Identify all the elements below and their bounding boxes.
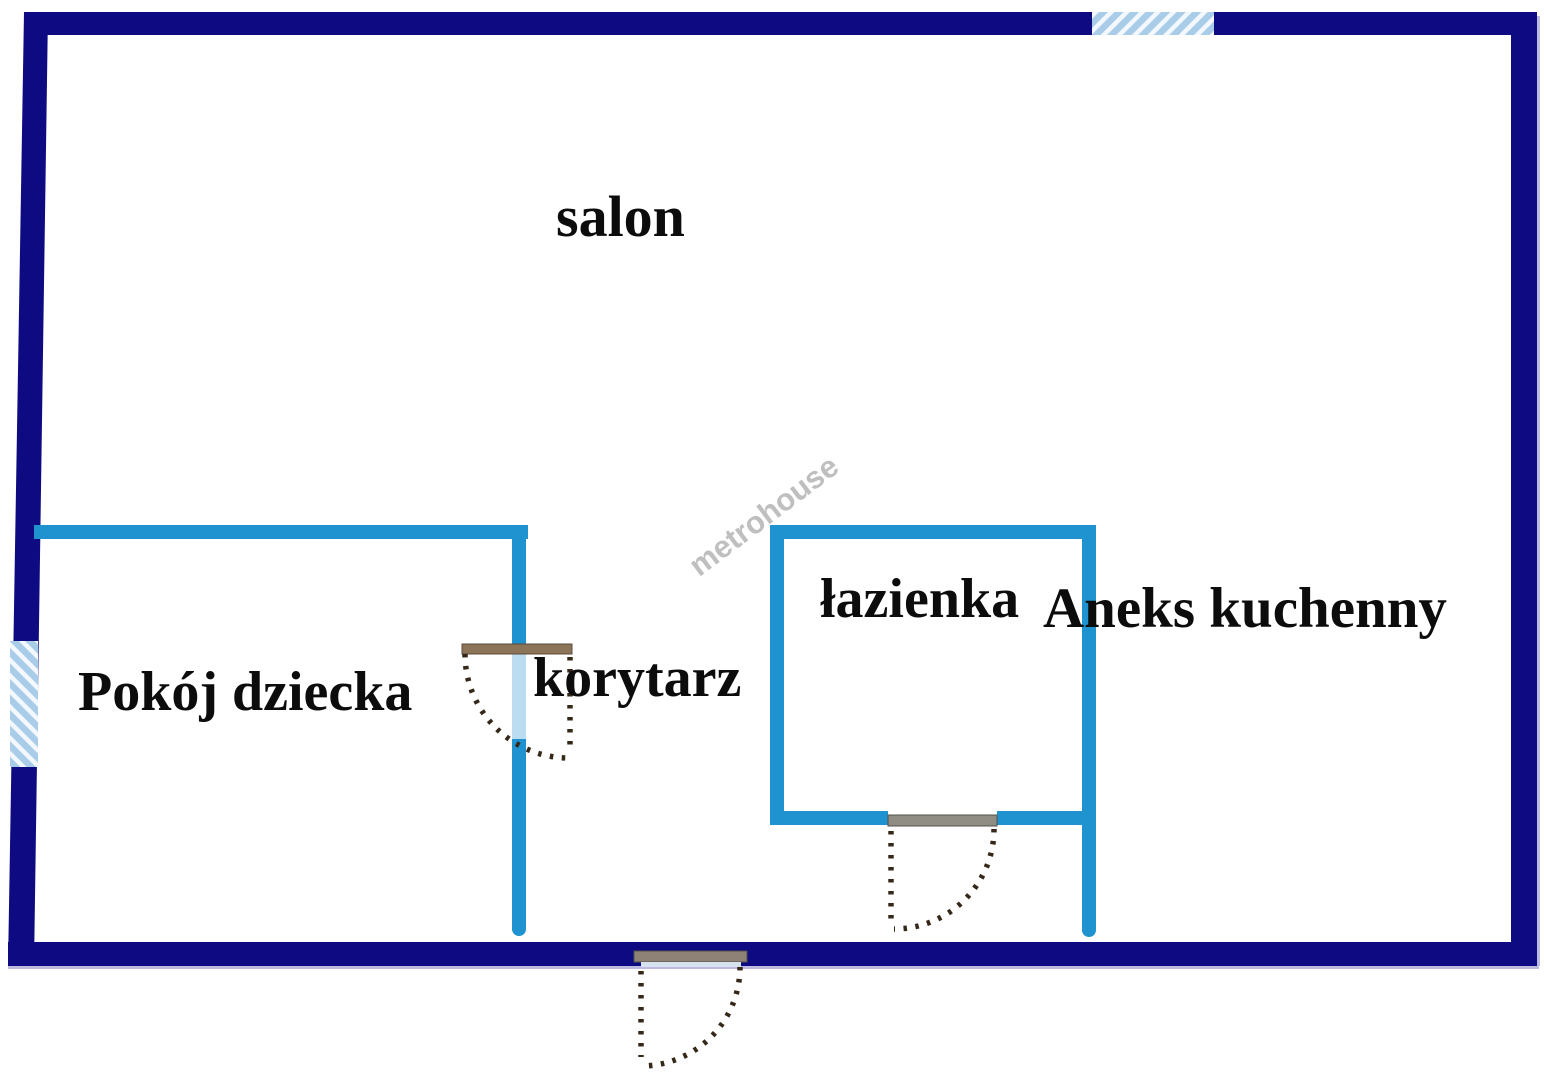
outer-wall-bottom [8, 942, 1537, 966]
outer-wall-top [24, 12, 1537, 35]
entrance-door-opening [641, 962, 741, 967]
wall-lazienka-top [770, 525, 1096, 539]
room-label-korytarz: korytarz [533, 647, 741, 709]
floor-plan: metrohouse [0, 0, 1544, 1080]
entrance-door-lintel [634, 951, 747, 962]
room-label-salon: salon [556, 184, 685, 249]
wall-pokoj-top [34, 525, 528, 539]
floor-plan-canvas: metrohouse [0, 0, 1544, 1080]
outer-wall-bottom-shadow [8, 966, 1539, 969]
room-label-pokoj-dziecka: Pokój dziecka [78, 661, 412, 723]
lazienka-door-lintel [888, 815, 997, 826]
wall-lazienka-bottom-right [997, 811, 1089, 825]
korytarz-door-opening [512, 653, 526, 739]
window-left [10, 641, 38, 767]
outer-wall-right-shadow [1537, 16, 1540, 966]
window-top [1092, 12, 1214, 35]
wall-lazienka-bottom-left [770, 811, 888, 825]
outer-wall-right [1511, 12, 1537, 966]
wall-lazienka-left [770, 525, 784, 825]
room-label-lazienka: łazienka [820, 568, 1019, 630]
room-label-aneks-kuchenny: Aneks kuchenny [1043, 577, 1447, 640]
